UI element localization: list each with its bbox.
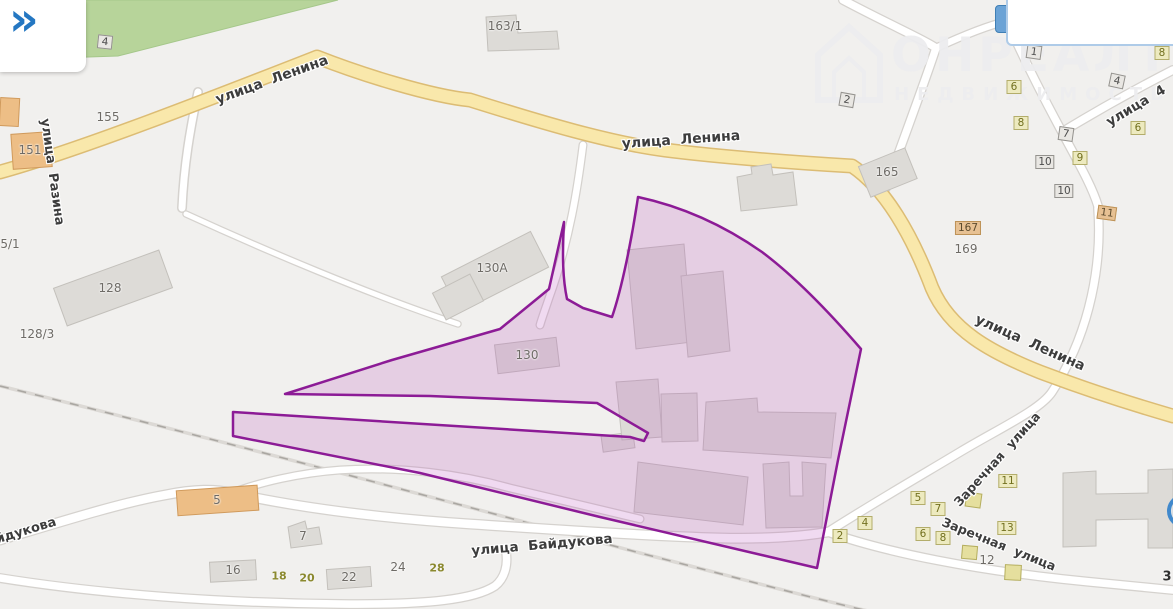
double-chevron-right-icon: » bbox=[9, 0, 39, 46]
map-canvas[interactable]: ОНРЕАЛТ НЕДВИЖИМОСТЬ улица Ленинаулица Л… bbox=[0, 0, 1173, 609]
map-layer bbox=[0, 0, 1173, 609]
building-151 bbox=[11, 132, 52, 170]
building-orange-small bbox=[0, 98, 20, 127]
sidebar-expand-button[interactable]: » bbox=[0, 0, 86, 72]
building-16 bbox=[210, 560, 257, 582]
map-background bbox=[0, 0, 1173, 609]
building-5 bbox=[176, 485, 259, 516]
building-22 bbox=[326, 566, 371, 589]
map-search-box[interactable] bbox=[1006, 0, 1173, 46]
